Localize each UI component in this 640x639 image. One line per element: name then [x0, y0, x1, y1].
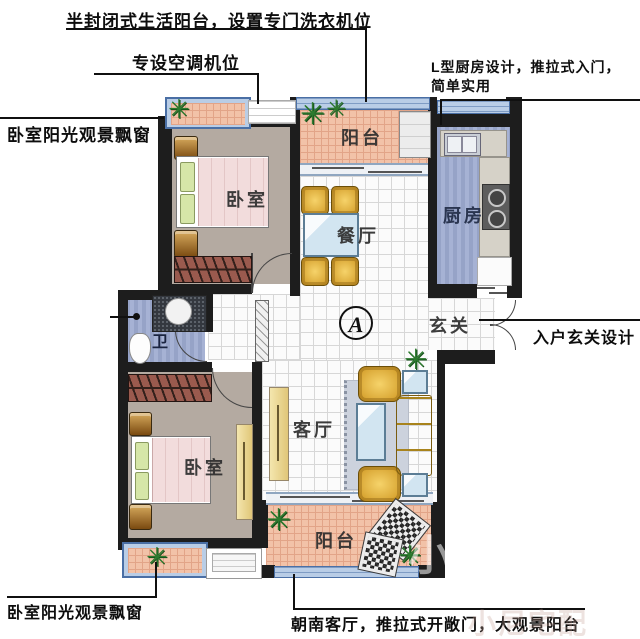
pillow — [135, 472, 149, 500]
annotation-kitchen: L型厨房设计，推拉式入门， 简单实用 — [431, 58, 621, 96]
leader-line — [0, 117, 164, 119]
armchair — [358, 466, 401, 502]
stove-burner — [488, 210, 506, 228]
unit-marker-circle: A — [339, 306, 373, 340]
toilet — [129, 333, 151, 364]
sink-basin — [462, 136, 477, 153]
room-label-balcony-bottom: 阳台 — [315, 527, 357, 553]
kitchen-appliance — [477, 257, 512, 286]
wall-segment — [158, 284, 252, 294]
fixture-pointer-line — [110, 316, 135, 318]
pillow — [180, 194, 195, 224]
nightstand — [129, 412, 152, 436]
wall-segment — [437, 350, 495, 364]
room-label-living: 客厅 — [293, 416, 335, 442]
ac-unit-box — [212, 553, 256, 572]
duct-shaft — [255, 300, 269, 362]
wall-segment — [428, 284, 477, 298]
leader-line — [440, 99, 442, 125]
wardrobe — [128, 374, 212, 402]
floor-plan-image: ✳ ✳ ✳ ✳ ✳ ✳ ✳ 阳台 卧室 餐厅 厨房 卫 玄关 客厅 卧室 阳台 … — [0, 0, 640, 639]
plant-icon: ✳ — [168, 96, 190, 122]
wall-segment — [437, 360, 445, 505]
leader-line — [7, 596, 157, 598]
fixture-pointer-dot — [133, 313, 140, 320]
dining-chair — [331, 257, 359, 286]
kitchen-sliding-door-leaf — [489, 292, 507, 294]
tv-cabinet-handle — [277, 405, 279, 461]
dining-chair — [301, 257, 329, 286]
sliding-door-leaf — [280, 496, 350, 498]
ac-unit-spot — [248, 100, 296, 124]
plant-icon: ✳ — [404, 346, 427, 374]
annotation-bay-window-top: 卧室阳光观景飘窗 — [7, 121, 151, 146]
dining-chair — [301, 186, 329, 215]
annotation-kitchen-line1: L型厨房设计，推拉式入门， — [431, 59, 621, 75]
wardrobe — [174, 256, 252, 283]
wall-segment — [431, 502, 445, 578]
room-label-entry-hall: 玄关 — [429, 312, 471, 338]
annotation-kitchen-line2: 简单实用 — [431, 78, 491, 94]
dining-chair — [331, 186, 359, 215]
entry-door-arc-upper — [490, 300, 516, 326]
leader-line — [365, 28, 367, 102]
room-label-balcony-top: 阳台 — [341, 124, 383, 150]
pillow — [135, 442, 149, 470]
nightstand — [129, 504, 152, 530]
side-table — [402, 473, 428, 497]
corridor-floor — [208, 294, 300, 360]
sofa — [396, 395, 432, 476]
entry-door-arc-lower — [490, 324, 516, 350]
kitchen-window — [437, 100, 510, 114]
plant-icon: ✳ — [300, 100, 325, 130]
armchair — [358, 366, 401, 402]
kitchen-sliding-door-leaf — [477, 287, 495, 289]
room-label-bathroom: 卫 — [152, 328, 171, 352]
plant-icon: ✳ — [398, 542, 421, 570]
sliding-door-leaf — [368, 171, 422, 173]
annotation-ac-unit: 专设空调机位 — [132, 49, 240, 74]
annotation-balcony-top: 半封闭式生活阳台，设置专门洗衣机位 — [66, 7, 372, 32]
stove-burner — [488, 189, 506, 207]
leader-line — [293, 574, 295, 610]
annotation-entry: 入户玄关设计 — [533, 324, 635, 348]
wash-basin — [165, 298, 192, 325]
pillow — [180, 162, 195, 192]
plant-icon: ✳ — [266, 506, 291, 536]
nightstand — [174, 230, 198, 258]
sliding-door-leaf — [312, 167, 364, 169]
room-label-bedroom-bottom: 卧室 — [184, 454, 226, 480]
annotation-living-south: 朝南客厅，推拉式开敞门，大观景阳台 — [291, 611, 580, 635]
room-label-dining: 餐厅 — [337, 222, 379, 248]
lounge-chair — [359, 533, 403, 577]
leader-line — [257, 73, 259, 104]
washing-machine — [399, 111, 431, 158]
dresser-handle — [243, 442, 245, 500]
tv-cabinet — [269, 387, 289, 481]
wall-segment — [507, 284, 522, 298]
wall-segment — [118, 362, 212, 372]
room-label-bedroom-top: 卧室 — [226, 186, 268, 212]
annotation-bay-window-bottom: 卧室阳光观景飘窗 — [7, 599, 143, 623]
leader-line — [440, 99, 640, 101]
coffee-table — [356, 403, 386, 461]
room-label-kitchen: 厨房 — [443, 202, 485, 228]
wall-segment — [158, 116, 172, 294]
wall-segment — [118, 290, 128, 550]
sliding-door-balcony-top — [300, 163, 428, 176]
leader-line — [293, 608, 585, 610]
leader-line — [155, 562, 157, 598]
plant-icon: ✳ — [326, 98, 346, 122]
wall-segment — [437, 114, 510, 127]
sink-basin — [447, 136, 462, 153]
leader-line — [479, 319, 640, 321]
